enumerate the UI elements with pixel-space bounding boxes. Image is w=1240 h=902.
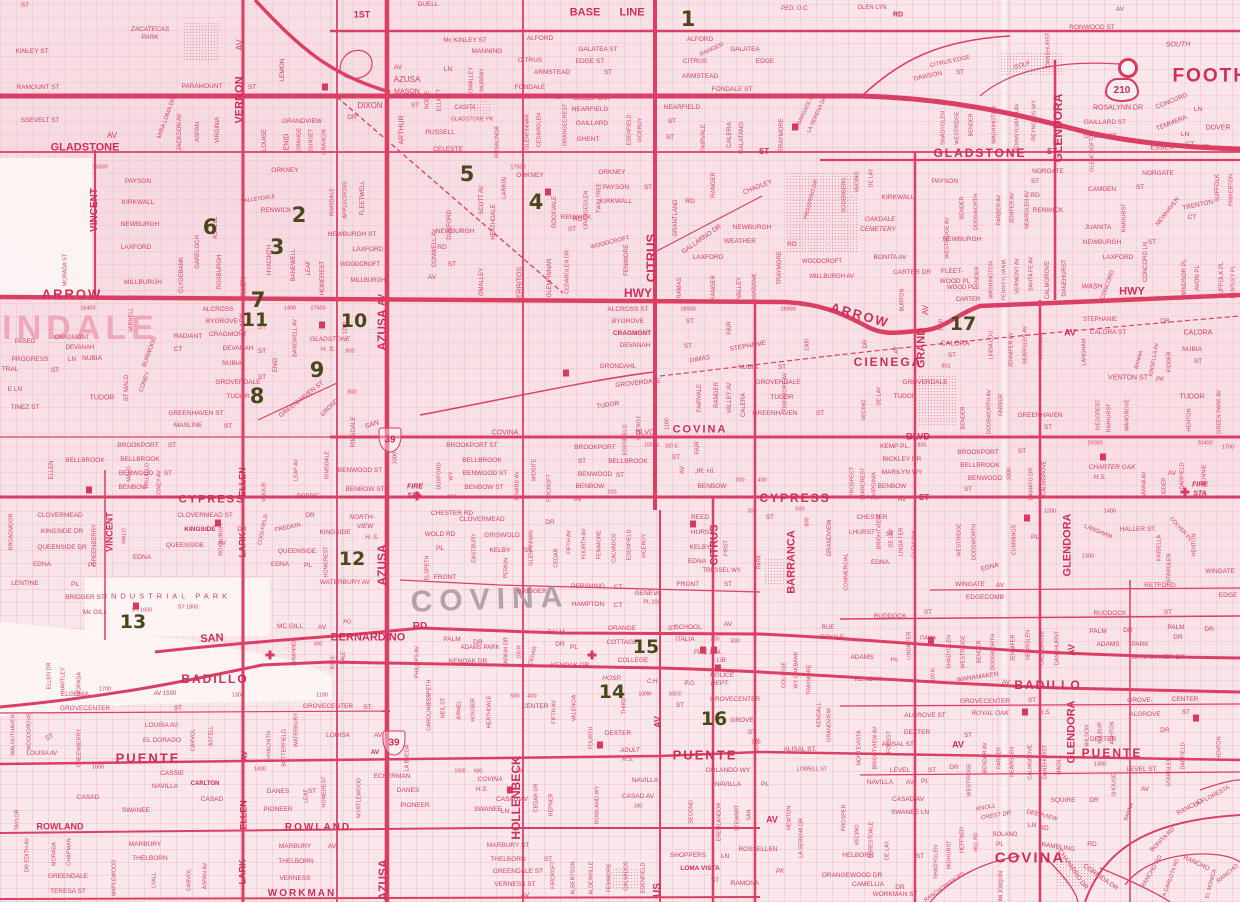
map-marker-4[interactable]: 4 [529,190,544,214]
map-marker-5[interactable]: 5 [460,162,475,186]
map-marker-3[interactable]: 3 [270,235,285,259]
map-marker-16[interactable]: 16 [701,708,727,730]
map-marker-13[interactable]: 13 [120,611,146,633]
map-marker-1[interactable]: 1 [681,7,696,31]
map-marker-9[interactable]: 9 [310,358,325,382]
map-marker-12[interactable]: 12 [339,548,365,570]
map-marker-15[interactable]: 15 [633,636,659,658]
map-marker-11[interactable]: 11 [242,309,268,331]
map-marker-6[interactable]: 6 [203,215,218,239]
map-marker-17[interactable]: 17 [950,313,976,335]
map-marker-10[interactable]: 10 [341,310,367,332]
map-marker-8[interactable]: 8 [250,384,265,408]
map-marker-2[interactable]: 2 [292,203,307,227]
map-marker-14[interactable]: 14 [599,681,625,703]
map-canvas: ST1STDUELLBASELINEPED. O.C.ZACATECASPARK… [0,0,1240,902]
annotation-markers-layer: 1234567891011121314151617 [0,0,1240,902]
